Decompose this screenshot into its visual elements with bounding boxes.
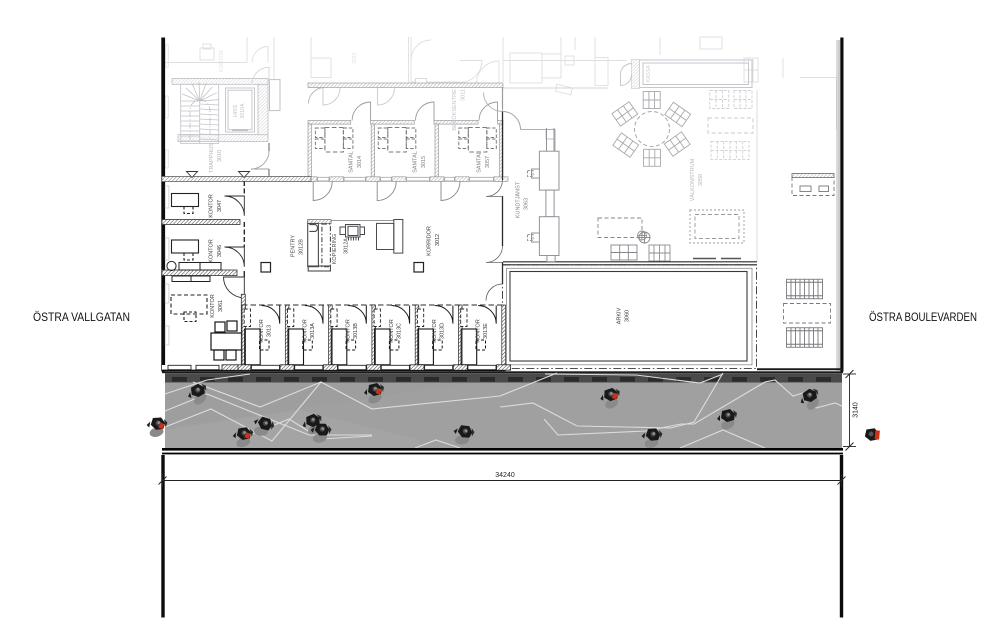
svg-text:SAMTAL: SAMTAL	[349, 151, 355, 173]
svg-text:VÄLKOMSTRUM: VÄLKOMSTRUM	[689, 158, 696, 201]
svg-text:3010A: 3010A	[240, 103, 246, 119]
svg-text:3013D: 3013D	[440, 323, 446, 339]
svg-text:KONTOR: KONTOR	[209, 239, 215, 262]
svg-text:BESÖKSENTRÉ: BESÖKSENTRÉ	[451, 89, 458, 131]
svg-text:3047: 3047	[217, 200, 223, 212]
svg-text:3058: 3058	[698, 174, 704, 186]
svg-text:KONTOR: KONTOR	[302, 319, 308, 342]
svg-text:3012B: 3012B	[299, 239, 305, 255]
svg-text:3011: 3011	[461, 89, 467, 101]
svg-text:PENTRY: PENTRY	[291, 235, 297, 258]
svg-text:3010: 3010	[217, 150, 223, 162]
svg-text:3057: 3057	[485, 156, 491, 168]
svg-text:SAMTAL: SAMTAL	[413, 151, 419, 173]
svg-text:KASSA: KASSA	[646, 65, 652, 82]
svg-text:KONTOR: KONTOR	[389, 319, 395, 342]
svg-text:3013B: 3013B	[353, 323, 359, 339]
svg-text:3014: 3014	[357, 156, 363, 168]
svg-text:KONTOR: KONTOR	[219, 50, 225, 72]
svg-text:KONTOR: KONTOR	[346, 319, 352, 342]
svg-text:ÖSTRA VALLGATAN: ÖSTRA VALLGATAN	[33, 312, 130, 324]
svg-text:34240: 34240	[495, 472, 515, 479]
svg-text:3013A: 3013A	[310, 323, 316, 339]
svg-text:KUNDTJÄNST: KUNDTJÄNST	[515, 181, 522, 218]
svg-text:3013C: 3013C	[396, 323, 402, 339]
svg-text:KOPIERING: KOPIERING	[332, 234, 338, 265]
svg-text:SAMTAL: SAMTAL	[477, 151, 483, 173]
svg-text:3046: 3046	[217, 245, 223, 257]
svg-text:3140: 3140	[853, 402, 860, 418]
svg-text:3012A: 3012A	[344, 238, 350, 254]
svg-text:ARKIV: ARKIV	[617, 307, 623, 324]
svg-text:KONTOR: KONTOR	[432, 319, 438, 342]
svg-text:3063: 3063	[524, 198, 530, 210]
svg-text:TRAPPHUS: TRAPPHUS	[209, 143, 215, 173]
svg-text:KORRIDOR: KORRIDOR	[427, 226, 433, 256]
svg-text:3013: 3013	[267, 325, 273, 337]
svg-text:KONTOR: KONTOR	[476, 319, 482, 342]
svg-text:KONTOR: KONTOR	[259, 319, 265, 342]
svg-text:3060: 3060	[625, 310, 631, 322]
svg-text:3061: 3061	[218, 300, 224, 312]
svg-text:HISS: HISS	[233, 104, 239, 117]
svg-text:KONTOR: KONTOR	[209, 194, 215, 217]
svg-text:3013E: 3013E	[483, 323, 489, 339]
svg-text:3012: 3012	[435, 234, 441, 246]
svg-text:KONTOR: KONTOR	[210, 294, 216, 317]
svg-text:3052: 3052	[352, 52, 358, 64]
svg-text:3015: 3015	[421, 156, 427, 168]
svg-text:ÖSTRA BOULEVARDEN: ÖSTRA BOULEVARDEN	[869, 312, 977, 324]
